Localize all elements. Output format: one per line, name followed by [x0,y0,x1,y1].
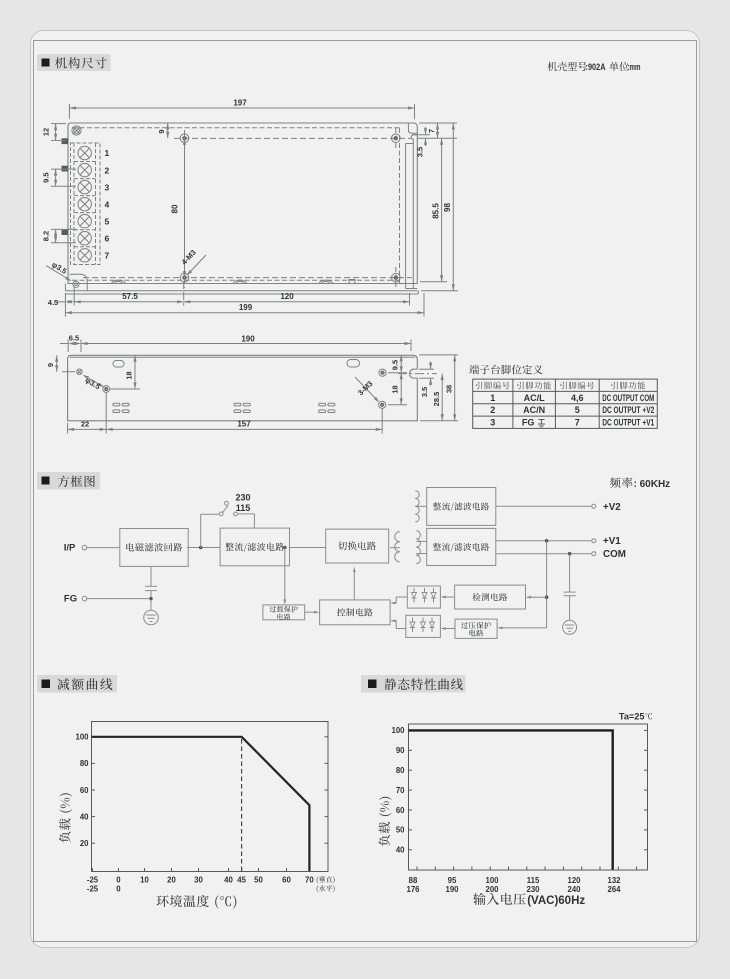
svg-text:70: 70 [305,875,314,884]
svg-text:100: 100 [391,726,405,735]
svg-text:DC OUTPUT +V2: DC OUTPUT +V2 [602,405,654,415]
svg-text:190: 190 [445,885,459,894]
svg-text:30: 30 [194,875,203,884]
svg-text:50: 50 [396,826,405,835]
svg-text:200: 200 [485,885,499,894]
svg-text:197: 197 [233,99,247,108]
svg-text:80: 80 [80,759,89,768]
svg-text:240: 240 [567,885,581,894]
svg-text:60: 60 [396,806,405,815]
svg-text:5: 5 [105,216,110,226]
svg-text:2: 2 [105,165,110,175]
svg-text:3.5: 3.5 [416,147,425,157]
svg-text:50: 50 [254,875,263,884]
svg-text:FG: FG [64,594,77,605]
svg-text:20: 20 [167,875,176,884]
svg-text:9: 9 [157,129,166,133]
svg-text:4,6: 4,6 [571,393,584,403]
svg-text:1: 1 [490,393,495,403]
svg-text:-25: -25 [87,875,99,884]
svg-text:2: 2 [490,405,495,415]
svg-text:40: 40 [80,812,89,821]
svg-text:190: 190 [241,335,255,344]
svg-text:4: 4 [105,199,110,209]
svg-text:264: 264 [607,885,621,894]
svg-text:120: 120 [280,292,294,301]
svg-text:85.5: 85.5 [431,203,440,219]
svg-text:230: 230 [235,493,250,503]
svg-text:FG: FG [522,418,535,428]
svg-text:+V2: +V2 [603,502,621,513]
svg-text:5: 5 [575,405,580,415]
svg-text:100: 100 [485,876,499,885]
svg-text:176: 176 [406,885,420,894]
svg-text:COM: COM [603,549,626,560]
svg-text:4.5: 4.5 [48,298,58,307]
svg-text:98: 98 [443,203,452,212]
svg-text:20: 20 [80,839,89,848]
svg-text:10: 10 [140,875,149,884]
svg-text:8.2: 8.2 [42,231,51,241]
svg-text:7: 7 [427,129,436,133]
svg-text:57.5: 57.5 [122,292,138,301]
svg-text:0: 0 [116,875,121,884]
svg-text:60: 60 [282,875,291,884]
svg-text:7: 7 [105,251,110,261]
svg-text:18: 18 [125,371,134,379]
svg-text:-25: -25 [87,884,99,893]
svg-text:132: 132 [607,876,621,885]
svg-text:100: 100 [75,733,89,742]
svg-text::902A: :902A [586,62,606,73]
svg-text:3: 3 [105,182,110,192]
svg-text:9.5: 9.5 [42,172,51,182]
svg-text:3: 3 [490,418,495,428]
svg-text:1: 1 [105,148,110,158]
svg-text:I/P: I/P [64,543,76,554]
svg-text:22: 22 [81,419,89,428]
svg-text:28.5: 28.5 [432,392,441,407]
svg-text:DC OUTPUT +V1: DC OUTPUT +V1 [602,418,654,428]
svg-text:12: 12 [42,128,51,136]
svg-text:80: 80 [171,204,180,213]
svg-text:: 60KHz: : 60KHz [634,479,671,490]
svg-text:95: 95 [448,876,457,885]
svg-text:40: 40 [396,846,405,855]
svg-text:199: 199 [239,303,253,312]
svg-text:AC/N: AC/N [523,405,545,415]
svg-text:3.5: 3.5 [420,387,429,397]
svg-text:DC OUTPUT COM: DC OUTPUT COM [602,393,654,403]
svg-text:90: 90 [396,746,405,755]
svg-text:(VAC)60Hz: (VAC)60Hz [527,895,585,907]
svg-text:9: 9 [46,363,55,367]
svg-text:60: 60 [80,786,89,795]
svg-text:AC/L: AC/L [524,393,545,403]
svg-text:157: 157 [237,419,251,428]
svg-text:40: 40 [224,875,233,884]
svg-text:6.5: 6.5 [69,334,79,343]
svg-text:88: 88 [409,876,418,885]
svg-text:9.5: 9.5 [391,360,400,370]
svg-text:0: 0 [116,884,121,893]
svg-text:115: 115 [527,876,540,885]
svg-text:Ta=25: Ta=25 [619,711,645,721]
svg-text:+V1: +V1 [603,536,621,547]
svg-text::mm: :mm [628,62,641,73]
svg-text:120: 120 [567,876,581,885]
svg-text:6: 6 [105,233,110,243]
svg-text:45: 45 [237,875,246,884]
svg-text:115: 115 [236,503,251,513]
svg-text:18: 18 [391,385,400,393]
svg-text:7: 7 [575,418,580,428]
svg-text:230: 230 [526,885,540,894]
svg-text:38: 38 [444,385,453,393]
svg-text:80: 80 [396,766,405,775]
svg-text:70: 70 [396,786,405,795]
